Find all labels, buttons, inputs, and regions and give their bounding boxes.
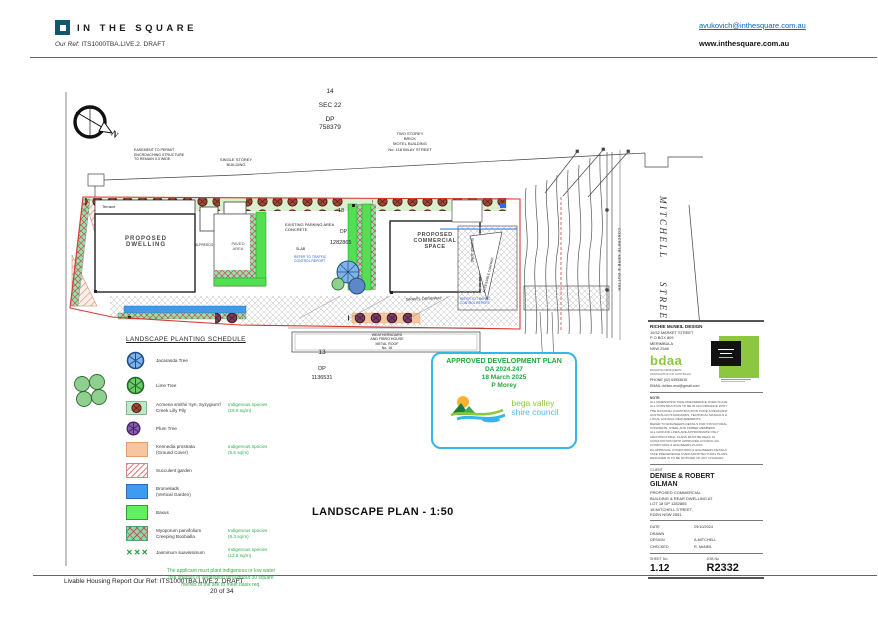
plum-tree-swatch <box>126 421 156 436</box>
legend-item-label: Myoporum parvifolium Creeping Boobialla <box>156 528 228 540</box>
legend-item: Acmena smithii 'syn. Syzygium'/ Creek Li… <box>126 401 322 415</box>
designer-email: EMAIL richien.rmd@gmail.com <box>650 384 763 389</box>
alfresco-label: ALFRESCO <box>195 243 213 247</box>
card-caption <box>721 379 757 383</box>
title-block: RICHIE McNEIL DESIGN 10/32 MARKET STREET… <box>648 320 764 579</box>
kerb-gutter-label: CONCRETE KERB & GUTTER <box>616 228 621 291</box>
legend-item-label: Bromeliads (Vertical Garden) <box>156 486 228 498</box>
legend-item: Succulent garden <box>126 463 322 478</box>
legend-item-note: Indigenous species (12.8 sq/m) <box>228 547 267 559</box>
lot-14-label: 14 <box>300 88 360 96</box>
legend-item: ✕✕✕ Jasminum suavissimum Indigenous spec… <box>126 547 322 559</box>
job-number: R2332 <box>707 562 764 574</box>
approval-stamp: APPROVED DEVELOPMENT PLAN DA 2024.247 18… <box>431 352 577 449</box>
job-number-label: JOB No <box>707 557 764 561</box>
project-description: PROPOSED COMMERCIAL BUILDING & REAR DWEL… <box>650 490 763 517</box>
legend-item-note: Indigenous species (8.3 sq/m) <box>228 528 267 540</box>
stamp-title: APPROVED DEVELOPMENT PLAN <box>446 358 562 365</box>
stamp-da-number: DA 2024.247 <box>485 366 523 373</box>
acmena-hedge-swatch <box>126 401 156 415</box>
north-arrow-icon <box>75 107 112 137</box>
designer-firm-name: RICHIE McNEIL DESIGN <box>650 324 763 329</box>
mitchell-label: MITCHELL <box>658 196 668 260</box>
bega-valley-council-logo: bega valley shire council <box>449 393 558 423</box>
shared-zone-label: SHARED ZONE <box>470 238 474 263</box>
easement-note: EASEMENT TO PERMIT ENCROACHING STRUCTURE… <box>134 148 184 162</box>
card-black-panel <box>711 341 741 366</box>
lime-tree-swatch <box>126 376 156 395</box>
sec-22-label: SEC 22 <box>300 102 360 110</box>
terrace-label: Terrace <box>102 204 115 209</box>
dp-758379-label: 758379 <box>300 124 360 132</box>
legend-item: Baxus <box>126 505 322 520</box>
slab-label: SLAB <box>296 247 305 252</box>
traffic-report-note-1: REFER TO TRAFFIC CONTROL REPORT <box>294 255 326 264</box>
dp-1282865-label: 1282865 <box>330 240 351 247</box>
titleblock-divider <box>650 553 763 554</box>
footer-ref: Livable Housing Report Our Ref: ITS1000T… <box>64 578 244 585</box>
sheet-number: 1.12 <box>650 563 707 574</box>
business-card-image <box>711 336 759 382</box>
motel-building-label: TWO STOREY BRICK MOTEL BUILDING No. 118 … <box>358 131 462 152</box>
legend-item-label: Baxus <box>156 510 228 516</box>
legend-item-label: Succulent garden <box>156 468 228 474</box>
notes-text: ALL DIMENSIONS TAKE PRECEDENCE OVER SCAL… <box>650 400 763 461</box>
meta-label: CHECKED <box>650 544 694 550</box>
buxus-swatch <box>126 505 156 520</box>
legend-item-note: Indigenous species (5.5 sq/m) <box>228 444 267 456</box>
legend-item: Bromeliads (Vertical Garden) <box>126 484 322 499</box>
legend-item-label: Plum Tree <box>156 426 228 432</box>
titleblock-divider <box>650 392 763 393</box>
drawing-meta: DATE29/10/2024 DRAWN DESIGNA.MITCHELL CH… <box>650 524 763 550</box>
lot-18-label: 18 <box>338 208 344 215</box>
legend-item-label: Acmena smithii 'syn. Syzygium'/ Creek Li… <box>156 402 228 414</box>
legend-item-label: Jacaranda Tree <box>156 358 228 364</box>
proposed-dwelling-label: PROPOSED DWELLING <box>110 236 182 248</box>
legend-item: Plum Tree <box>126 421 322 436</box>
landscape-planting-schedule: LANDSCAPE PLANTING SCHEDULE Jacaranda Tr… <box>126 336 322 590</box>
proposed-commercial-label: PROPOSED COMMERCIAL SPACE <box>396 232 474 250</box>
plan-document-page: IN THE SQUARE Our Ref: ITS1000TBA.LIVE.2… <box>0 0 878 620</box>
council-name-bottom: shire council <box>511 408 558 417</box>
traffic-report-note-2: REFER TO TRAFFIC CONTROL REPORT <box>460 297 490 305</box>
client-name: DENISE & ROBERT GILMAN <box>650 473 763 490</box>
plan-title: LANDSCAPE PLAN - 1:50 <box>312 506 454 518</box>
legend-item: Jacaranda Tree <box>126 351 322 370</box>
bromeliads-swatch <box>126 484 156 499</box>
titleblock-divider <box>650 520 763 521</box>
legend-item: Kennedia prostrata (Ground Cover) Indige… <box>126 442 322 457</box>
jasminum-swatch: ✕✕✕ <box>126 549 156 557</box>
stamp-officer: P Morey <box>491 382 516 389</box>
neighbour-house-label: WEATHERBOARD AND FIBRO HOUSE METAL ROOF … <box>342 333 432 351</box>
existing-parking-label: EXISTING PARKING AREA CONCRETE <box>285 222 334 232</box>
legend-item: Lime Tree <box>126 376 322 395</box>
legend-title: LANDSCAPE PLANTING SCHEDULE <box>126 336 322 343</box>
kennedia-swatch <box>126 442 156 457</box>
titleblock-divider <box>650 464 763 465</box>
legend-item-label: Lime Tree <box>156 383 228 389</box>
stamp-date: 18 March 2025 <box>482 374 526 381</box>
legend-item-note: Indigenous species (16.5 sq/m) <box>228 402 267 414</box>
single-storey-building-label: SINGLE STOREY BUILDING <box>206 157 266 167</box>
jacaranda-tree-swatch <box>126 351 156 370</box>
legend-item: Myoporum parvifolium Creeping Boobialla … <box>126 526 322 541</box>
council-logo-icon <box>449 393 507 423</box>
footer-divider <box>33 575 877 576</box>
legend-item-label: Jasminum suavissimum <box>156 550 228 556</box>
paved-area-label: PAVED AREA <box>222 241 254 251</box>
dp-label-18: DP <box>340 229 347 236</box>
succulent-garden-swatch <box>126 463 156 478</box>
myoporum-swatch <box>126 526 156 541</box>
page-number: 20 of 34 <box>210 588 234 595</box>
legend-item-label: Kennedia prostrata (Ground Cover) <box>156 444 228 456</box>
meta-value: R. McNEIL <box>694 544 763 550</box>
client-label: CLIENT <box>650 468 763 472</box>
sheet-number-label: SHEET No <box>650 557 707 561</box>
